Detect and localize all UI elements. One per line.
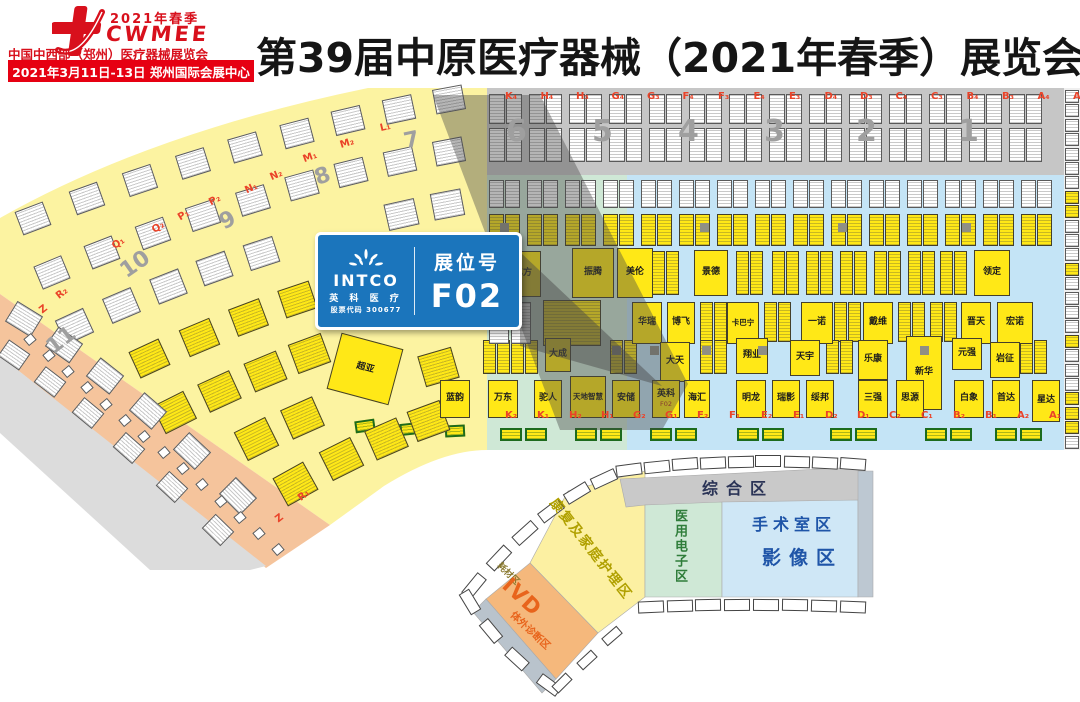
row-letter-fan: R₁ <box>296 487 312 503</box>
minimap-zone-imaging: 影像区 <box>762 543 843 570</box>
minimap-booth <box>753 598 779 610</box>
gate-number-10: 10 <box>116 245 155 283</box>
minimap-booth <box>478 618 503 644</box>
column-letter-bottom: A₂ <box>1017 410 1029 421</box>
row-letter-fan: P₁ <box>176 208 192 223</box>
gate-number-7: 7 <box>402 127 422 155</box>
page-title: 第39届中原医疗器械（2021年春季）展览会 <box>256 24 1078 84</box>
minimap-zone-comprehensive: 综合区 <box>702 475 774 499</box>
minimap-zone-electronics: 医用电子区 <box>670 509 689 584</box>
column-letter-top: H₄ <box>541 91 554 102</box>
minimap-booth <box>782 599 808 611</box>
row-letter-fan: M₂ <box>339 136 356 151</box>
minimap-booth <box>615 462 642 477</box>
row-letter-fan: Q₁ <box>110 235 127 251</box>
date-venue-banner: 2021年3月11日-13日 郑州国际会展中心 <box>8 60 254 82</box>
minimap-booth <box>643 460 670 475</box>
minimap-booth <box>601 626 623 647</box>
intco-stock-code: 股票代码 300677 <box>331 305 402 315</box>
minimap-booth <box>839 457 866 471</box>
minimap-booth <box>811 599 837 612</box>
gate-number-4: 4 <box>678 114 699 149</box>
gate-number-8: 8 <box>311 162 334 191</box>
column-letter-top: D₄ <box>825 91 838 102</box>
column-letter-bottom: K₂ <box>505 410 517 421</box>
column-letter-bottom: A₁ <box>1049 410 1061 421</box>
row-letter-fan: Z <box>273 512 285 525</box>
minimap-booth <box>511 519 538 545</box>
minimap-booth <box>576 649 597 670</box>
column-letter-bottom: D₂ <box>825 410 838 421</box>
gate-number-5: 5 <box>592 114 613 149</box>
column-letter-top: F₃ <box>718 91 729 102</box>
column-letter-top: D₃ <box>860 91 873 102</box>
column-letter-top: C₃ <box>931 91 943 102</box>
intco-cn-name: 英 科 医 疗 <box>329 291 402 304</box>
expo-floorplan-poster: 2021年春季 CWMEE 中国中西部（郑州）医疗器械展览会 2021年3月11… <box>0 0 1080 702</box>
minimap: 综合区 手术室区 影像区 医用电子区 康复及家庭护理区 耗材区 IVD 体外诊断… <box>440 445 1080 702</box>
column-letter-top: H₃ <box>576 91 589 102</box>
column-letter-bottom: E₂ <box>761 410 772 421</box>
minimap-booth <box>840 600 866 613</box>
column-letter-bottom: H₂ <box>569 410 582 421</box>
intco-brand-block: INTCO 英 科 医 疗 股票代码 300677 <box>318 235 414 327</box>
minimap-booth <box>699 456 726 469</box>
booth-number-label: 展位号 <box>434 248 500 275</box>
booth-number-block: 展位号 F02 <box>415 235 519 327</box>
column-letter-bottom: C₂ <box>889 410 901 421</box>
column-letter-bottom: D₁ <box>857 410 870 421</box>
column-letter-top: B₄ <box>967 91 979 102</box>
column-letter-bottom: B₁ <box>985 410 997 421</box>
row-letter-fan: P₂ <box>207 193 223 208</box>
logo-acronym: CWMEE <box>105 22 211 46</box>
gate-number-11: 11 <box>42 321 82 360</box>
row-letter-fan: L₁ <box>379 121 392 134</box>
minimap-booth <box>638 600 665 613</box>
row-letter-fan: M₁ <box>302 150 319 165</box>
column-letter-bottom: G₁ <box>665 410 678 421</box>
gate-number-6: 6 <box>506 114 527 149</box>
minimap-booth <box>504 646 530 671</box>
booth-number-value: F02 <box>431 277 503 315</box>
column-letter-top: K₄ <box>505 91 517 102</box>
minimap-booth <box>666 599 692 612</box>
minimap-booth <box>783 455 809 468</box>
row-letter-fan: N₁ <box>243 181 259 196</box>
minimap-booth <box>727 455 753 468</box>
row-letter-fan: Q₂ <box>150 219 167 235</box>
column-letter-top: A₄ <box>1038 91 1050 102</box>
column-letter-bottom: C₁ <box>921 410 933 421</box>
column-letter-bottom: G₂ <box>633 410 646 421</box>
minimap-booth <box>724 598 750 610</box>
row-letter-fan: N₂ <box>268 168 284 183</box>
column-letter-top: G₃ <box>647 91 660 102</box>
column-letter-top: B₃ <box>1002 91 1014 102</box>
column-letter-top: A₃ <box>1073 91 1080 102</box>
column-letter-top: E₃ <box>789 91 800 102</box>
minimap-booth <box>811 456 838 469</box>
intco-wordmark: INTCO <box>333 271 399 290</box>
column-letter-top: C₄ <box>896 91 908 102</box>
intco-callout: INTCO 英 科 医 疗 股票代码 300677 展位号 F02 <box>315 232 522 330</box>
column-letter-bottom: H₁ <box>601 410 614 421</box>
minimap-zone-operating-room: 手术室区 <box>752 511 836 535</box>
row-letter-fan: Z <box>37 303 49 316</box>
gate-number-2: 2 <box>856 114 877 149</box>
intco-starburst-icon <box>349 248 383 270</box>
column-letter-bottom: E₁ <box>793 410 804 421</box>
gate-number-3: 3 <box>764 114 785 149</box>
cwmee-logo: 2021年春季 CWMEE 中国中西部（郑州）医疗器械展览会 2021年3月11… <box>6 2 256 86</box>
minimap-booth <box>695 599 721 611</box>
column-letter-top: F₄ <box>683 91 694 102</box>
minimap-booth <box>589 468 618 490</box>
column-letter-top: E₄ <box>754 91 765 102</box>
column-letter-bottom: K₁ <box>537 410 549 421</box>
minimap-booth <box>755 455 781 467</box>
column-letter-bottom: B₂ <box>953 410 965 421</box>
column-letter-top: G₄ <box>612 91 625 102</box>
column-letter-bottom: F₁ <box>729 410 740 421</box>
gate-number-1: 1 <box>958 114 979 149</box>
row-letter-fan: R₂ <box>54 285 70 301</box>
gate-number-9: 9 <box>215 206 240 235</box>
minimap-booth <box>671 457 698 471</box>
column-letter-bottom: F₂ <box>697 410 708 421</box>
minimap-booth <box>458 588 481 615</box>
